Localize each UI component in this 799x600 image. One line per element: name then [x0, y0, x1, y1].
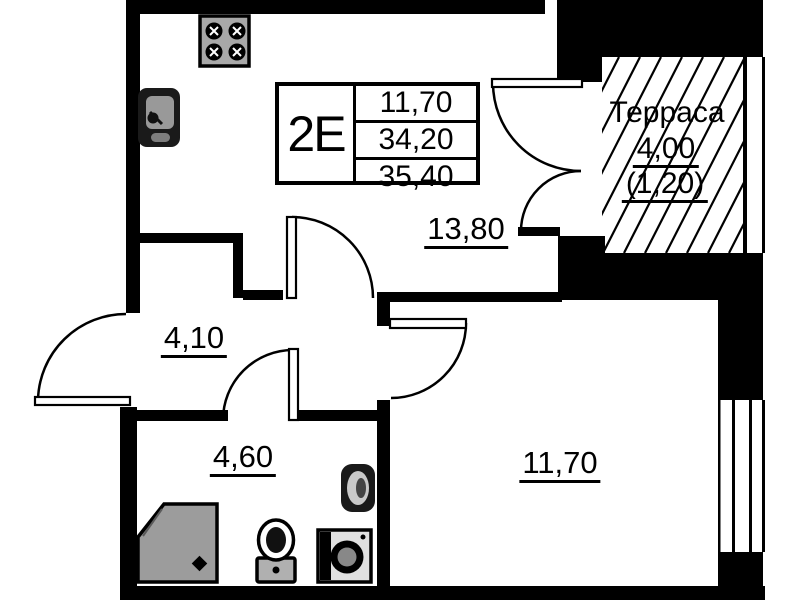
window	[718, 400, 765, 552]
window-opening	[718, 400, 765, 552]
window-mullion	[749, 400, 752, 552]
label-kitchen-living-area: 13,80	[424, 213, 508, 249]
wall-divider-upper	[377, 302, 390, 326]
terrace-door-arc-upper	[493, 83, 581, 171]
wall-left-upper	[126, 0, 140, 313]
bathroom-sink	[341, 464, 375, 512]
room-door-arc	[391, 323, 466, 398]
window-outer-edge	[762, 400, 765, 552]
entrance-door-leaf	[35, 397, 130, 405]
wall-terrace-door-sill	[518, 227, 560, 236]
shower	[138, 504, 217, 582]
wall-top	[126, 0, 545, 14]
wall-terrace-right-thin	[743, 57, 747, 253]
wall-bath-top-left	[137, 410, 228, 421]
wall-bottom	[120, 586, 765, 600]
terrace-door-leaf	[492, 79, 582, 87]
wall-right-above-window	[718, 300, 763, 400]
bathroom-door-leaf	[289, 349, 298, 420]
unit-type: 2Е	[279, 86, 356, 181]
kitchen-door-arc	[292, 217, 373, 298]
wall-hall-kitchen-b	[233, 240, 243, 298]
wall-terrace-band-left	[558, 236, 605, 300]
stove	[200, 16, 249, 66]
wall-terrace-band-right	[605, 253, 763, 300]
floor-plan: 13,80 4,10 4,60 11,70 Терраса 4,00 (1,20…	[0, 0, 799, 600]
wall-outer-edge-line	[762, 57, 765, 253]
unit-info-box: 2Е 11,70 34,20 35,40	[275, 82, 480, 185]
kitchen-door-leaf	[287, 217, 296, 298]
label-room-area: 11,70	[519, 447, 600, 483]
wall-terrace-pier	[557, 0, 602, 82]
entrance-door-arc	[38, 314, 126, 400]
unit-total-area: 34,20	[356, 120, 476, 160]
wall-divider-lower	[377, 400, 390, 586]
label-terrace-name: Терраса	[609, 98, 724, 128]
label-terrace-area: 4,00	[633, 134, 699, 168]
label-terrace-reduced-area: (1,20)	[622, 169, 708, 203]
room-door-leaf	[390, 319, 466, 328]
unit-areas: 11,70 34,20 35,40	[356, 86, 476, 181]
window-mullion	[732, 400, 735, 552]
label-bathroom-area: 4,60	[210, 441, 276, 477]
wall-bath-top-right	[293, 410, 390, 421]
washing-machine	[318, 530, 371, 582]
toilet	[257, 520, 295, 582]
terrace-door-arc-lower	[521, 171, 581, 231]
wall-room-top	[377, 292, 562, 302]
wall-hall-kitchen-a	[135, 233, 243, 243]
bathroom-door-arc	[223, 350, 293, 420]
window-inner-edge	[718, 400, 721, 552]
kitchen-sink	[138, 88, 180, 147]
wall-left-lower	[120, 407, 137, 592]
wall-hall-kitchen-c	[243, 290, 283, 300]
unit-total-area-with-terrace: 35,40	[356, 160, 476, 194]
wall-right-below-window	[718, 552, 763, 586]
unit-living-area: 11,70	[356, 86, 476, 120]
label-hallway-area: 4,10	[161, 322, 227, 358]
